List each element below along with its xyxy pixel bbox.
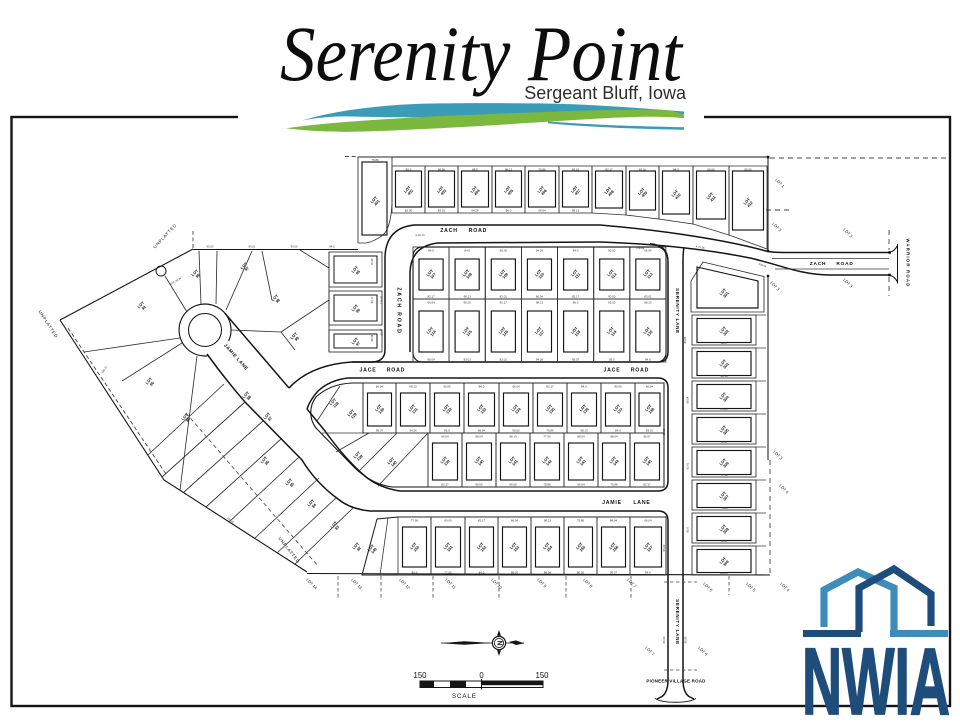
- svg-text:95.07: 95.07: [380, 328, 384, 335]
- svg-text:ROAD: ROAD: [387, 368, 405, 374]
- svg-text:65.00: 65.00: [207, 245, 214, 249]
- svg-text:ZACH ROAD: ZACH ROAD: [396, 287, 402, 334]
- svg-text:82.17: 82.17: [441, 482, 449, 486]
- svg-text:94.26: 94.26: [471, 208, 479, 212]
- svg-text:ROAD: ROAD: [469, 228, 487, 234]
- svg-text:95.07: 95.07: [376, 428, 384, 432]
- svg-text:66.04: 66.04: [511, 519, 519, 523]
- svg-text:82.17: 82.17: [370, 296, 374, 303]
- svg-text:66.04: 66.04: [441, 435, 449, 439]
- svg-text:SERENITY LANE: SERENITY LANE: [675, 599, 680, 645]
- svg-text:84.0: 84.0: [329, 245, 335, 249]
- svg-text:LANE: LANE: [633, 500, 650, 506]
- svg-text:SCALE: SCALE: [452, 693, 477, 700]
- svg-text:98.13: 98.13: [644, 301, 652, 305]
- svg-text:98.13: 98.13: [580, 428, 588, 432]
- svg-text:77.50: 77.50: [411, 519, 419, 523]
- svg-text:ROAD: ROAD: [631, 368, 649, 374]
- svg-text:66.04: 66.04: [646, 385, 654, 389]
- svg-text:98.13: 98.13: [464, 294, 472, 298]
- svg-text:83.01: 83.01: [500, 357, 508, 361]
- svg-text:94.26: 94.26: [409, 428, 417, 432]
- svg-text:JACE: JACE: [603, 368, 620, 374]
- svg-text:85.0: 85.0: [721, 440, 727, 444]
- svg-text:90.00: 90.00: [608, 249, 616, 253]
- svg-text:65.00: 65.00: [707, 168, 715, 172]
- svg-text:75.40: 75.40: [370, 258, 374, 265]
- svg-text:84.0: 84.0: [464, 249, 470, 253]
- svg-text:88.04: 88.04: [475, 435, 483, 439]
- svg-text:98.13: 98.13: [572, 208, 580, 212]
- svg-text:85.0: 85.0: [573, 301, 579, 305]
- svg-text:82.17: 82.17: [427, 294, 435, 298]
- svg-text:77.50: 77.50: [543, 435, 551, 439]
- svg-text:84.0: 84.0: [428, 249, 434, 253]
- svg-text:150: 150: [535, 671, 549, 680]
- svg-text:83.01: 83.01: [249, 245, 256, 249]
- svg-text:82.17: 82.17: [500, 301, 508, 305]
- svg-text:83.01: 83.01: [464, 357, 472, 361]
- svg-text:65.00: 65.00: [405, 208, 413, 212]
- svg-text:66.04: 66.04: [478, 428, 486, 432]
- svg-text:JACE: JACE: [359, 368, 376, 374]
- svg-text:66.04: 66.04: [538, 208, 546, 212]
- svg-text:80.00: 80.00: [577, 570, 585, 574]
- svg-text:65.00: 65.00: [608, 301, 616, 305]
- svg-text:84.0: 84.0: [721, 341, 727, 345]
- svg-text:66.04: 66.04: [370, 334, 374, 341]
- svg-text:90.00: 90.00: [438, 168, 446, 172]
- svg-text:80.00: 80.00: [444, 519, 452, 523]
- svg-text:95.07: 95.07: [572, 357, 580, 361]
- svg-text:85.0: 85.0: [444, 428, 450, 432]
- svg-text:85.0: 85.0: [721, 539, 727, 543]
- svg-text:75.86: 75.86: [371, 158, 379, 162]
- svg-text:66.04: 66.04: [577, 482, 585, 486]
- svg-text:65.00: 65.00: [662, 636, 666, 643]
- svg-text:SERENITY LANE: SERENITY LANE: [675, 288, 680, 334]
- svg-text:PIONEER VILLAGE ROAD: PIONEER VILLAGE ROAD: [646, 679, 705, 684]
- svg-text:90.00: 90.00: [608, 294, 616, 298]
- svg-text:98.13: 98.13: [509, 435, 517, 439]
- svg-text:98.13: 98.13: [505, 168, 513, 172]
- svg-text:82.17: 82.17: [572, 294, 580, 298]
- svg-text:82.17: 82.17: [643, 482, 651, 486]
- svg-text:66.04: 66.04: [683, 336, 687, 343]
- svg-text:77.50: 77.50: [720, 473, 728, 477]
- svg-text:65.00: 65.00: [662, 544, 666, 551]
- svg-text:65.00: 65.00: [500, 249, 508, 253]
- svg-text:65.00: 65.00: [720, 407, 728, 411]
- svg-text:82.17: 82.17: [478, 519, 486, 523]
- svg-text:66.04: 66.04: [376, 385, 384, 389]
- svg-text:0: 0: [479, 671, 484, 680]
- svg-text:ZACH: ZACH: [440, 228, 458, 234]
- svg-text:84.0: 84.0: [573, 249, 579, 253]
- svg-text:75.86: 75.86: [720, 506, 728, 510]
- svg-text:85.0: 85.0: [686, 527, 690, 533]
- svg-text:95.07: 95.07: [643, 435, 651, 439]
- svg-text:82.17: 82.17: [546, 385, 554, 389]
- svg-text:84.0: 84.0: [645, 357, 651, 361]
- svg-text:65.00: 65.00: [662, 428, 666, 435]
- svg-text:98.13: 98.13: [720, 374, 728, 378]
- svg-text:77.50: 77.50: [444, 570, 452, 574]
- svg-text:84.0: 84.0: [581, 385, 587, 389]
- svg-text:85.0: 85.0: [412, 570, 418, 574]
- svg-text:Sergeant Bluff, Iowa: Sergeant Bluff, Iowa: [524, 83, 687, 103]
- svg-text:NWIA: NWIA: [802, 629, 950, 720]
- svg-text:JAMIE: JAMIE: [602, 500, 622, 506]
- svg-text:83.01: 83.01: [686, 462, 690, 469]
- svg-text:130.87: 130.87: [380, 295, 384, 304]
- svg-text:4.08.13: 4.08.13: [415, 233, 425, 237]
- svg-text:84.0: 84.0: [472, 168, 478, 172]
- svg-text:WARRIOR ROAD: WARRIOR ROAD: [906, 238, 911, 287]
- svg-text:ZACH: ZACH: [810, 261, 827, 267]
- svg-text:88.04: 88.04: [610, 435, 618, 439]
- svg-text:83.01: 83.01: [572, 168, 580, 172]
- svg-text:98.13: 98.13: [409, 385, 417, 389]
- svg-text:84.0: 84.0: [673, 168, 679, 172]
- svg-text:N: N: [496, 640, 503, 645]
- svg-text:90.00: 90.00: [475, 482, 483, 486]
- svg-text:66.04: 66.04: [644, 249, 652, 253]
- svg-text:95.07: 95.07: [610, 570, 618, 574]
- svg-text:85.0: 85.0: [406, 168, 412, 172]
- svg-text:83.01: 83.01: [646, 428, 654, 432]
- svg-text:65.00: 65.00: [509, 482, 517, 486]
- svg-text:66.04: 66.04: [427, 357, 435, 361]
- svg-text:84.0: 84.0: [506, 208, 512, 212]
- svg-text:ROAD: ROAD: [836, 261, 853, 267]
- svg-text:66.04: 66.04: [644, 519, 652, 523]
- svg-text:83.01: 83.01: [639, 168, 647, 172]
- svg-text:75.86: 75.86: [546, 428, 554, 432]
- svg-text:75.86: 75.86: [577, 519, 585, 523]
- svg-text:150: 150: [413, 671, 427, 680]
- svg-text:95.07: 95.07: [511, 570, 519, 574]
- svg-text:80.00: 80.00: [614, 385, 622, 389]
- svg-text:94.26: 94.26: [536, 249, 544, 253]
- svg-text:75.86: 75.86: [543, 482, 551, 486]
- svg-text:84.0: 84.0: [479, 385, 485, 389]
- svg-text:88.04: 88.04: [686, 396, 690, 403]
- svg-text:88.04: 88.04: [720, 571, 728, 575]
- svg-text:75.86: 75.86: [538, 168, 546, 172]
- svg-text:83.01: 83.01: [438, 208, 446, 212]
- svg-text:66.04: 66.04: [427, 301, 435, 305]
- svg-text:65.00: 65.00: [684, 636, 688, 643]
- svg-text:98.13: 98.13: [536, 301, 544, 305]
- svg-text:90.00: 90.00: [443, 385, 451, 389]
- svg-text:90.00: 90.00: [512, 428, 520, 432]
- svg-text:66.04: 66.04: [512, 385, 520, 389]
- svg-text:98.13: 98.13: [544, 519, 552, 523]
- svg-text:94.26: 94.26: [536, 357, 544, 361]
- svg-text:83.01: 83.01: [500, 294, 508, 298]
- svg-text:65.00: 65.00: [464, 301, 472, 305]
- svg-text:88.04: 88.04: [544, 570, 552, 574]
- svg-text:90.00: 90.00: [291, 245, 298, 249]
- svg-text:83.01: 83.01: [644, 294, 652, 298]
- svg-text:88.04: 88.04: [610, 519, 618, 523]
- svg-text:66.04: 66.04: [536, 294, 544, 298]
- svg-text:65.00: 65.00: [744, 168, 752, 172]
- svg-text:84.0: 84.0: [645, 570, 651, 574]
- svg-text:85.0: 85.0: [609, 357, 615, 361]
- svg-text:88.04: 88.04: [577, 435, 585, 439]
- svg-text:75.86: 75.86: [610, 482, 618, 486]
- svg-text:84.0: 84.0: [479, 570, 485, 574]
- svg-text:84.0: 84.0: [615, 428, 621, 432]
- svg-text:82.17: 82.17: [605, 168, 613, 172]
